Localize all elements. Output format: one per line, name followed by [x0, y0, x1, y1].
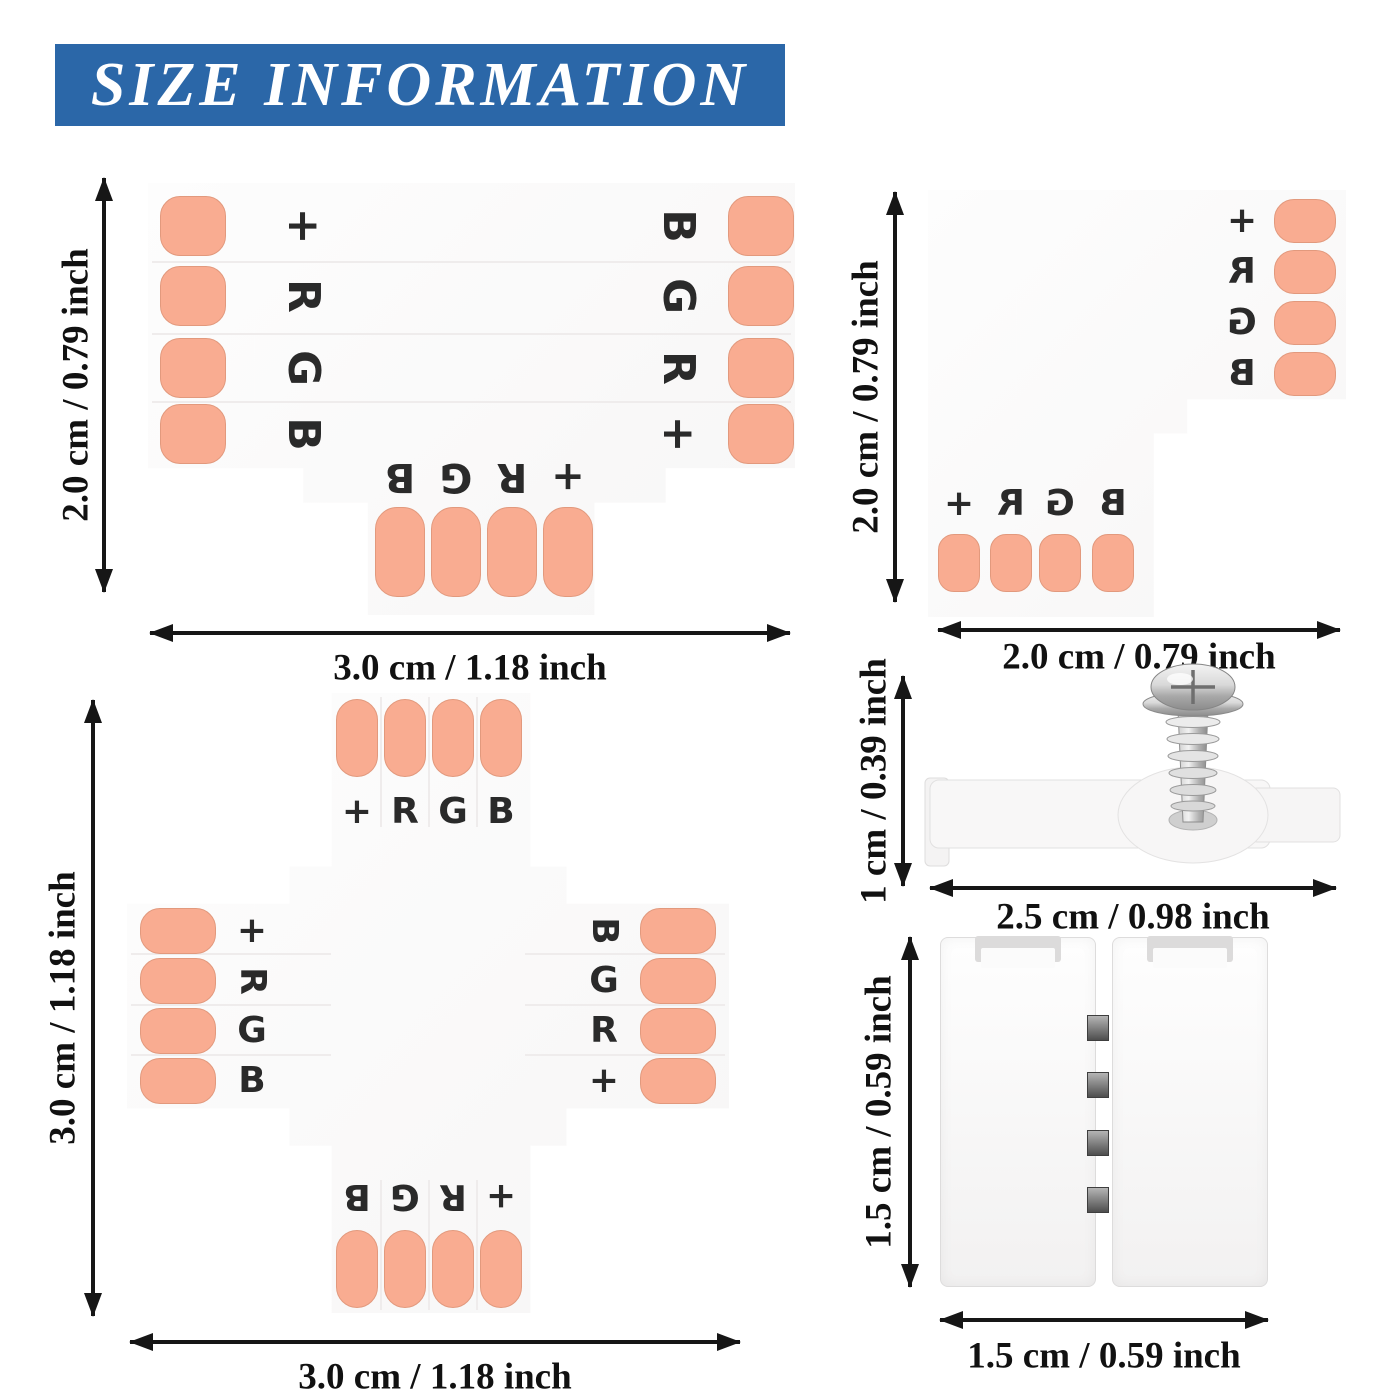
screw-head-highlight	[1167, 673, 1193, 685]
gapless-height-label: 1.5 cm / 0.59 inch	[858, 975, 901, 1248]
pin-label: R	[234, 967, 270, 995]
size-information-diagram: SIZE INFORMATION + R G B B G R + B G R +…	[0, 0, 1400, 1400]
gapless-connector-left-block	[940, 937, 1096, 1287]
copper-pad	[480, 699, 522, 777]
pin-label: R	[439, 1178, 467, 1214]
pin-label: +	[944, 486, 974, 522]
copper-pad	[543, 507, 593, 597]
pin-label: R	[391, 794, 419, 830]
pin-label: B	[385, 457, 416, 497]
screw-thread	[1169, 768, 1217, 779]
copper-pad	[140, 908, 216, 954]
copper-pad	[728, 338, 794, 398]
copper-pad	[384, 1230, 426, 1308]
pin-label: B	[487, 794, 514, 830]
l-height-label: 2.0 cm / 0.79 inch	[845, 260, 888, 533]
screw-thread	[1166, 717, 1220, 728]
pin-label: +	[342, 794, 372, 830]
trace-line	[428, 697, 430, 827]
pin-label: +	[1227, 203, 1257, 239]
pin-label: R	[497, 457, 528, 497]
t-width-arrow	[150, 631, 790, 635]
pin-label: R	[281, 279, 325, 313]
copper-pad	[375, 507, 425, 597]
copper-pad	[1274, 301, 1336, 345]
copper-pad	[431, 507, 481, 597]
pin-label: +	[486, 1178, 516, 1214]
pin-label: G	[281, 350, 325, 386]
gapless-height-arrow	[908, 937, 912, 1287]
copper-pad	[640, 958, 716, 1004]
pin-label: G	[1045, 486, 1075, 522]
copper-pad	[140, 958, 216, 1004]
copper-pad	[160, 266, 226, 326]
pin-label: B	[586, 917, 622, 944]
copper-pad	[640, 908, 716, 954]
copper-pad	[487, 507, 537, 597]
trace-line	[131, 1054, 331, 1056]
copper-pad	[728, 404, 794, 464]
pin-label: R	[997, 486, 1025, 522]
trace-line	[428, 1180, 430, 1310]
trace-line	[152, 333, 791, 335]
cross-width-arrow	[130, 1340, 740, 1344]
copper-pad	[990, 534, 1032, 592]
t-height-arrow	[102, 178, 106, 592]
l-height-arrow	[893, 192, 897, 602]
connector-pin	[1087, 1072, 1109, 1098]
pin-label: R	[590, 1013, 618, 1049]
trace-line	[131, 1004, 331, 1006]
connector-pin	[1087, 1015, 1109, 1041]
cross-width-label: 3.0 cm / 1.18 inch	[298, 1356, 571, 1399]
cross-height-arrow	[91, 700, 95, 1316]
title-banner: SIZE INFORMATION	[55, 44, 785, 126]
screw-thread	[1168, 751, 1218, 762]
trace-line	[152, 261, 791, 263]
clip-width-arrow	[930, 886, 1336, 890]
connector-pin	[1087, 1187, 1109, 1213]
copper-pad	[1092, 534, 1134, 592]
page-title: SIZE INFORMATION	[91, 50, 749, 121]
clip-width-label: 2.5 cm / 0.98 inch	[996, 896, 1269, 939]
copper-pad	[336, 1230, 378, 1308]
pin-label: +	[281, 208, 325, 245]
pin-label: G	[1227, 305, 1257, 341]
pin-label: +	[589, 1063, 619, 1099]
copper-pad	[480, 1230, 522, 1308]
trace-line	[380, 697, 382, 827]
copper-pad	[1039, 534, 1081, 592]
copper-pad	[160, 196, 226, 256]
connector-pin	[1087, 1130, 1109, 1156]
copper-pad	[160, 338, 226, 398]
copper-pad	[336, 699, 378, 777]
screw-thread	[1171, 801, 1215, 811]
trace-line	[525, 1054, 725, 1056]
pin-label: B	[1099, 486, 1126, 522]
copper-pad	[1274, 250, 1336, 294]
t-width-label: 3.0 cm / 1.18 inch	[333, 647, 606, 690]
pin-label: R	[1228, 254, 1256, 290]
pin-label: G	[589, 963, 619, 999]
pin-label: B	[1228, 356, 1255, 392]
copper-pad	[140, 1058, 216, 1104]
t-height-label: 2.0 cm / 0.79 inch	[55, 248, 98, 521]
pin-label: B	[281, 417, 325, 451]
pin-label: +	[656, 416, 700, 453]
screw-thread	[1170, 785, 1216, 796]
mounting-clip-graphic	[920, 660, 1345, 880]
copper-pad	[938, 534, 980, 592]
pin-label: R	[656, 351, 700, 385]
pin-label: B	[238, 1063, 265, 1099]
copper-pad	[728, 196, 794, 256]
pin-label: G	[656, 278, 700, 314]
copper-pad	[384, 699, 426, 777]
trace-line	[525, 1004, 725, 1006]
trace-line	[476, 697, 478, 827]
cross-height-label: 3.0 cm / 1.18 inch	[42, 871, 85, 1144]
clip-height-arrow	[901, 676, 905, 886]
copper-pad	[1274, 352, 1336, 396]
copper-pad	[140, 1008, 216, 1054]
trace-line	[476, 1180, 478, 1310]
pin-label: G	[438, 794, 468, 830]
copper-pad	[728, 266, 794, 326]
strip-tab	[981, 948, 1055, 968]
pin-label: B	[656, 209, 700, 243]
copper-pad	[432, 1230, 474, 1308]
gapless-connector-right-block	[1112, 937, 1268, 1287]
pin-label: G	[237, 1013, 267, 1049]
copper-pad	[1274, 199, 1336, 243]
copper-pad	[160, 404, 226, 464]
strip-tab	[1153, 948, 1227, 968]
trace-line	[380, 1180, 382, 1310]
pin-label: B	[343, 1178, 370, 1214]
gapless-width-arrow	[940, 1318, 1268, 1322]
trace-line	[152, 401, 791, 403]
screw-thread	[1167, 734, 1219, 745]
clip-height-label: 1 cm / 0.39 inch	[853, 658, 896, 904]
gapless-width-label: 1.5 cm / 0.59 inch	[967, 1335, 1240, 1378]
copper-pad	[640, 1008, 716, 1054]
pin-label: G	[390, 1178, 420, 1214]
pin-label: +	[551, 457, 585, 497]
pin-label: G	[440, 457, 473, 497]
copper-pad	[640, 1058, 716, 1104]
copper-pad	[432, 699, 474, 777]
pin-label: +	[237, 913, 267, 949]
l-width-arrow	[938, 628, 1340, 632]
